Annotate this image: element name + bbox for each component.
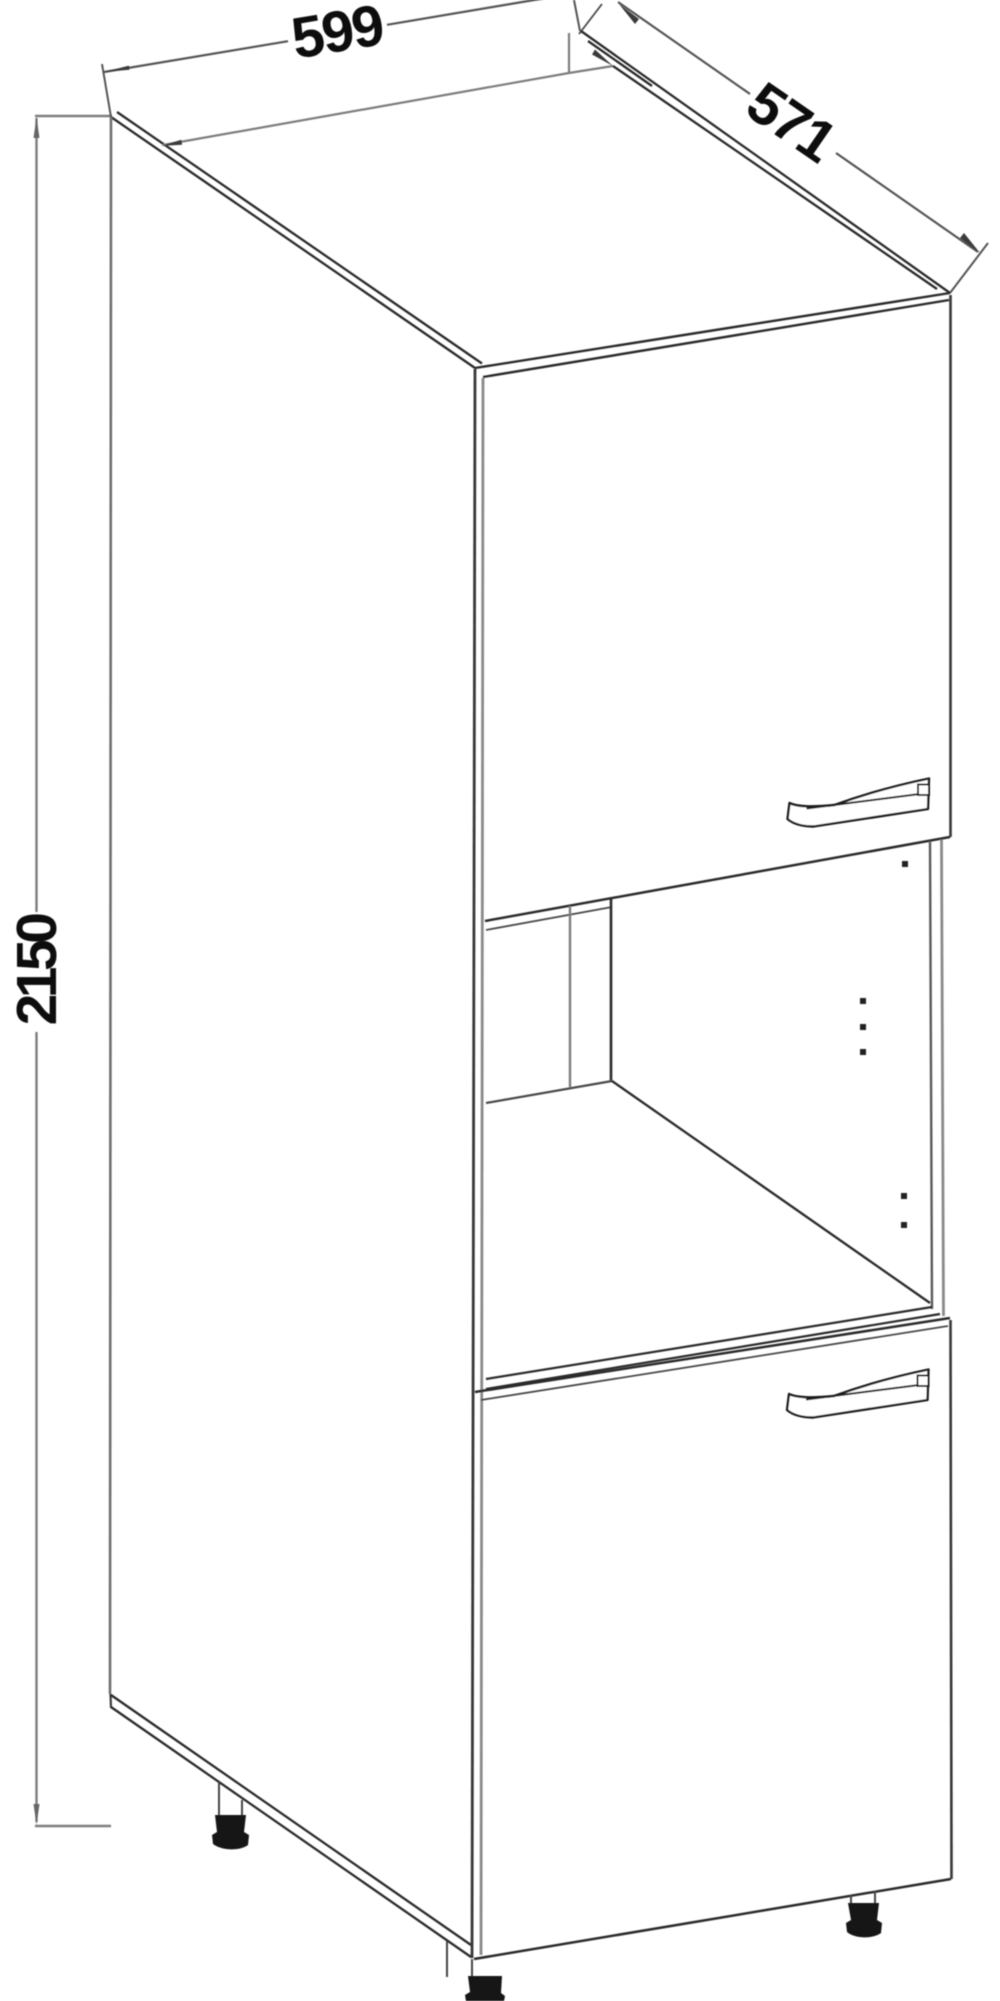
svg-text:571: 571 bbox=[735, 70, 847, 175]
svg-text:599: 599 bbox=[287, 0, 388, 72]
svg-text:2150: 2150 bbox=[5, 914, 69, 1026]
